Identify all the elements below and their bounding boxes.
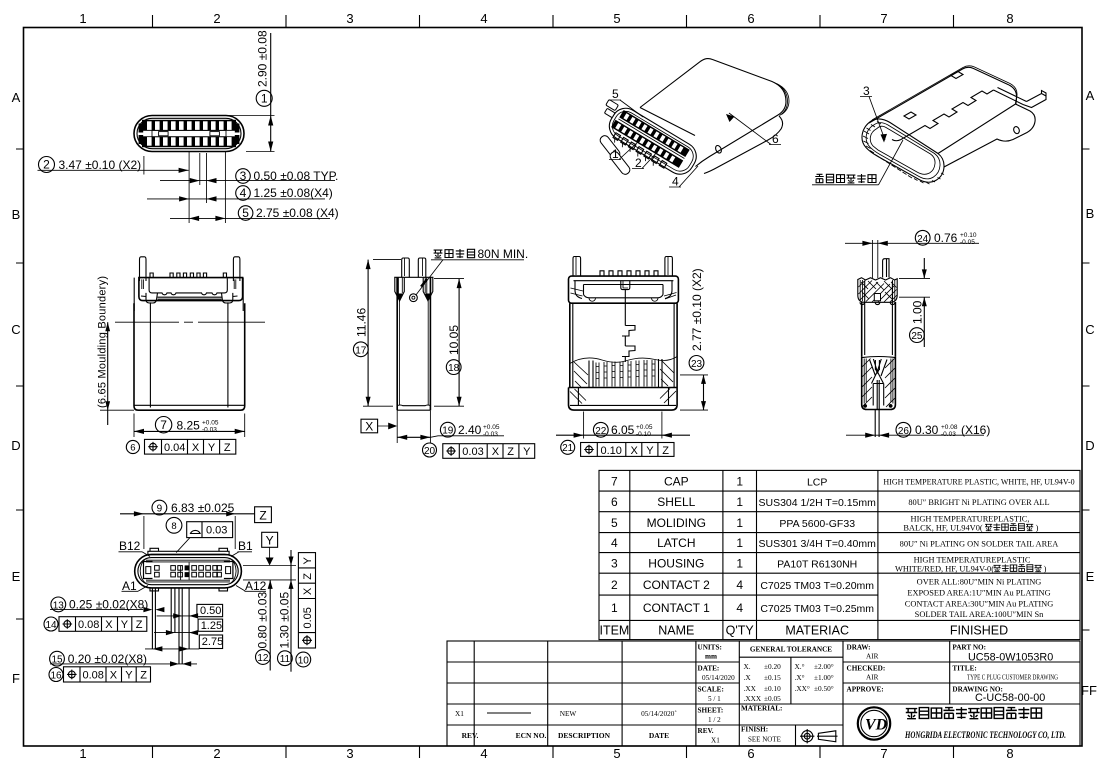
svg-text:-0.03: -0.03	[483, 431, 498, 438]
svg-text:8.25: 8.25	[177, 419, 201, 433]
svg-text:CONTACT AREA:30U″MIN Au PLATI: CONTACT AREA:30U″MIN Au PLATING	[905, 600, 1054, 609]
svg-text:±0.50°: ±0.50°	[814, 684, 834, 693]
svg-text:±0.15: ±0.15	[764, 673, 781, 682]
svg-text:1: 1	[261, 92, 268, 106]
svg-text:D: D	[11, 438, 20, 453]
svg-text:5: 5	[611, 516, 618, 530]
svg-text:6.05: 6.05	[611, 423, 635, 437]
svg-text:ECN NO.: ECN NO.	[516, 731, 547, 740]
svg-text:FINISH:: FINISH:	[741, 726, 768, 734]
svg-text:TITLE:: TITLE:	[952, 665, 976, 673]
svg-text:PA10T R6130NH: PA10T R6130NH	[777, 559, 857, 571]
svg-text:LATCH: LATCH	[657, 536, 695, 550]
svg-text:±0.10: ±0.10	[764, 684, 781, 693]
svg-text:SOLDER TAIL AREA:100U″MIN Sn: SOLDER TAIL AREA:100U″MIN Sn	[915, 610, 1044, 619]
svg-text:3: 3	[863, 84, 870, 98]
svg-text:Y: Y	[266, 533, 274, 547]
svg-text:B12: B12	[119, 539, 141, 553]
svg-text:1: 1	[612, 147, 619, 161]
svg-text:ITEM: ITEM	[599, 624, 629, 638]
svg-text:C-UC58-00-00: C-UC58-00-00	[975, 692, 1045, 704]
svg-text:5: 5	[612, 87, 619, 101]
svg-text:0.80 ±0.03: 0.80 ±0.03	[256, 592, 270, 649]
svg-text:1.30 ±0.05: 1.30 ±0.05	[278, 592, 292, 649]
svg-text:8: 8	[1006, 11, 1013, 26]
svg-text:X: X	[302, 587, 314, 595]
svg-text:DATE:: DATE:	[698, 665, 720, 673]
svg-text:AIR: AIR	[866, 653, 879, 661]
svg-text:25: 25	[911, 331, 923, 342]
svg-text:DRAW:: DRAW:	[847, 644, 871, 652]
svg-text:HIGH TEMPERATURE PLASTIC, WHIT: HIGH TEMPERATURE PLASTIC, WHITE, HF, UL9…	[883, 478, 1074, 487]
svg-text:2: 2	[635, 156, 642, 170]
svg-text:6: 6	[130, 443, 135, 454]
svg-text:Y: Y	[208, 442, 216, 454]
svg-text:X1: X1	[711, 737, 720, 745]
svg-text:C7025 TM03 T=0.25mm: C7025 TM03 T=0.25mm	[760, 603, 874, 615]
svg-text:CHECKED:: CHECKED:	[847, 665, 886, 673]
svg-text:F: F	[12, 671, 20, 686]
svg-text:B1: B1	[238, 539, 253, 553]
svg-text:.XX°: .XX°	[795, 684, 810, 693]
svg-text:UNITS:: UNITS:	[698, 644, 722, 652]
svg-text:(6.65 Moulding Boundery): (6.65 Moulding Boundery)	[97, 276, 109, 408]
svg-text:MATERIAC: MATERIAC	[785, 624, 849, 638]
svg-text:1.00: 1.00	[910, 300, 924, 324]
svg-text:DATE: DATE	[649, 731, 669, 740]
svg-text:E: E	[12, 569, 21, 584]
svg-text:12: 12	[257, 653, 269, 664]
svg-text:Y: Y	[125, 670, 133, 682]
svg-text:7: 7	[880, 11, 887, 26]
svg-text:Q'TY: Q'TY	[726, 624, 755, 638]
svg-text:7: 7	[160, 418, 167, 432]
svg-text:5: 5	[613, 746, 620, 761]
svg-text:FINISHED: FINISHED	[950, 624, 1008, 638]
svg-text:NAME: NAME	[658, 624, 694, 638]
svg-text:X: X	[631, 445, 639, 457]
svg-text:±2.00°: ±2.00°	[814, 662, 834, 671]
svg-text:10.05: 10.05	[447, 325, 461, 355]
svg-text:NEW: NEW	[560, 709, 577, 718]
svg-text:.X: .X	[744, 673, 752, 682]
svg-text:0.10: 0.10	[601, 445, 622, 457]
svg-text:4: 4	[480, 11, 487, 26]
svg-text:0.04: 0.04	[164, 442, 185, 454]
svg-text:Z: Z	[136, 619, 143, 631]
svg-text:2.90 ±0.08: 2.90 ±0.08	[256, 30, 270, 87]
svg-text:-0.03: -0.03	[941, 431, 956, 438]
svg-text:4: 4	[480, 746, 487, 761]
svg-text:±1.00°: ±1.00°	[814, 673, 834, 682]
svg-text:GENERAL TOLERANCE: GENERAL TOLERANCE	[750, 646, 832, 654]
svg-text:APPROVE:: APPROVE:	[847, 686, 884, 694]
svg-text:2: 2	[213, 746, 220, 761]
svg-text:Y: Y	[121, 619, 129, 631]
svg-text:6: 6	[747, 746, 754, 761]
svg-text:1: 1	[736, 495, 743, 509]
svg-text:HIGH TEMPERATUREPLASTIC: HIGH TEMPERATUREPLASTIC	[914, 556, 1031, 565]
svg-text:-0.05: -0.05	[960, 239, 975, 246]
svg-text:.XX: .XX	[744, 684, 757, 693]
svg-text:SEE NOTE: SEE NOTE	[748, 736, 781, 744]
svg-text:.X°: .X°	[795, 673, 805, 682]
svg-text:0.05: 0.05	[302, 607, 314, 628]
svg-text:0.03: 0.03	[206, 525, 227, 537]
svg-text:): )	[1044, 565, 1047, 574]
svg-text:10: 10	[298, 656, 310, 667]
svg-text:mm: mm	[705, 653, 717, 661]
svg-text:X1: X1	[455, 709, 464, 718]
svg-text:2: 2	[213, 11, 220, 26]
svg-text:3: 3	[346, 11, 353, 26]
svg-text:-0.03: -0.03	[202, 427, 217, 434]
svg-text:22: 22	[595, 426, 607, 437]
svg-text:-0.10: -0.10	[636, 431, 651, 438]
svg-text:OVER ALL:80U″MIN Ni PLATING: OVER ALL:80U″MIN Ni PLATING	[917, 578, 1042, 587]
svg-text:±0.05: ±0.05	[764, 694, 781, 703]
svg-text:SUS304 1/2H T=0.15mm: SUS304 1/2H T=0.15mm	[758, 497, 876, 509]
svg-text:AIR: AIR	[866, 674, 879, 682]
svg-text:4: 4	[611, 536, 618, 550]
svg-text:3: 3	[611, 557, 618, 571]
svg-text:REV.: REV.	[698, 727, 714, 735]
svg-text:6: 6	[772, 132, 779, 146]
svg-text:REV.: REV.	[462, 731, 479, 740]
svg-text:VD: VD	[865, 717, 888, 734]
svg-text:1 / 2: 1 / 2	[708, 716, 721, 724]
svg-text:4: 4	[736, 601, 743, 615]
svg-text:3: 3	[346, 746, 353, 761]
svg-text:±0.20: ±0.20	[764, 662, 781, 671]
svg-text:Y: Y	[646, 445, 654, 457]
svg-text:2: 2	[43, 158, 50, 172]
svg-text:C: C	[1085, 322, 1094, 337]
svg-text:0.08: 0.08	[78, 619, 99, 631]
svg-text:B: B	[12, 207, 21, 222]
svg-text:Z: Z	[224, 442, 231, 454]
svg-text:2.75 ±0.08 (X4): 2.75 ±0.08 (X4)	[256, 206, 339, 220]
svg-text:+0.05: +0.05	[636, 424, 653, 431]
svg-text:7: 7	[880, 746, 887, 761]
svg-text:E: E	[1086, 569, 1095, 584]
svg-text:0.50: 0.50	[200, 605, 221, 617]
svg-text:4: 4	[672, 175, 679, 189]
svg-text:1: 1	[736, 516, 743, 530]
svg-text:3: 3	[240, 169, 247, 183]
svg-text:17: 17	[355, 345, 367, 356]
svg-text:BALCK, HF, UL94V0(: BALCK, HF, UL94V0(	[903, 524, 983, 533]
svg-text:5: 5	[613, 11, 620, 26]
svg-text:2.40: 2.40	[458, 423, 482, 437]
svg-text:8: 8	[1006, 746, 1013, 761]
svg-text:UC58-0W1053R0: UC58-0W1053R0	[968, 652, 1053, 664]
svg-text:X: X	[105, 619, 113, 631]
svg-text:1: 1	[79, 11, 86, 26]
svg-text:X: X	[365, 419, 373, 433]
svg-text:PPA 5600-GF33: PPA 5600-GF33	[779, 518, 855, 530]
svg-text:.XXX: .XXX	[744, 694, 762, 703]
svg-text:Z: Z	[662, 445, 669, 457]
svg-text:11.46: 11.46	[354, 308, 368, 337]
svg-text:2: 2	[611, 578, 618, 592]
svg-text:X: X	[492, 446, 500, 458]
svg-text:): )	[1036, 524, 1039, 533]
svg-text:6: 6	[611, 495, 618, 509]
svg-text:SHEET:: SHEET:	[698, 707, 724, 715]
svg-text:4: 4	[736, 578, 743, 592]
svg-text:C: C	[11, 322, 20, 337]
svg-text:Z: Z	[507, 446, 514, 458]
svg-text:80U″ BRIGHT Ni PLATING OVER AL: 80U″ BRIGHT Ni PLATING OVER ALL	[908, 498, 1049, 507]
svg-text:1: 1	[736, 557, 743, 571]
svg-text:LCP: LCP	[807, 477, 827, 489]
svg-text:1: 1	[611, 601, 618, 615]
svg-text:14: 14	[45, 620, 57, 631]
svg-text:7: 7	[611, 475, 618, 489]
svg-text:+0.05: +0.05	[483, 424, 500, 431]
svg-text:19: 19	[442, 426, 454, 437]
svg-text:80N MIN.: 80N MIN.	[478, 247, 529, 261]
svg-text:6.83 ±0.025: 6.83 ±0.025	[171, 501, 235, 515]
svg-text:5 / 1: 5 / 1	[708, 695, 721, 703]
svg-text:Z: Z	[140, 670, 147, 682]
svg-text:+0.10: +0.10	[960, 232, 977, 239]
svg-text:Z: Z	[302, 573, 314, 580]
svg-text:2.77 ±0.10 (X2): 2.77 ±0.10 (X2)	[690, 268, 704, 351]
svg-text:1.25 ±0.08(X4): 1.25 ±0.08(X4)	[254, 186, 333, 200]
svg-text:A: A	[1086, 88, 1095, 103]
svg-text:SCALE:: SCALE:	[698, 686, 724, 694]
svg-text:21: 21	[562, 443, 574, 454]
svg-text:Y: Y	[523, 446, 531, 458]
svg-text:PART NO:: PART NO:	[952, 644, 986, 652]
svg-text:20: 20	[424, 446, 436, 457]
svg-text:X.°: X.°	[795, 662, 805, 671]
svg-text:2.75: 2.75	[202, 636, 223, 648]
svg-text:D: D	[1085, 438, 1094, 453]
svg-text:FF: FF	[1081, 683, 1097, 698]
svg-text:0.08: 0.08	[83, 670, 104, 682]
svg-text:HONGRIDA ELECTRONIC TECHNOLOGY: HONGRIDA ELECTRONIC TECHNOLOGY CO, LTD.	[904, 730, 1066, 740]
svg-text:X.: X.	[744, 662, 751, 671]
svg-text:CONTACT 2: CONTACT 2	[643, 578, 710, 592]
svg-text:23: 23	[691, 359, 703, 370]
svg-text:Y: Y	[302, 557, 314, 565]
svg-text:8: 8	[171, 521, 176, 532]
svg-text:0.03: 0.03	[462, 446, 483, 458]
svg-text:C7025 TM03 T=0.20mm: C7025 TM03 T=0.20mm	[760, 580, 874, 592]
svg-text:1.25: 1.25	[201, 620, 222, 632]
svg-text:9: 9	[157, 504, 163, 515]
svg-text:1: 1	[79, 746, 86, 761]
svg-text:4: 4	[240, 186, 247, 200]
svg-text:A: A	[12, 90, 21, 105]
svg-text:1: 1	[736, 536, 743, 550]
svg-text:18: 18	[448, 363, 460, 374]
svg-text:WHITE/RED, HF, UL94V-0(: WHITE/RED, HF, UL94V-0(	[895, 565, 994, 574]
svg-text:CONTACT 1: CONTACT 1	[643, 601, 710, 615]
svg-text:05/14/2020˚: 05/14/2020˚	[641, 709, 677, 718]
svg-text:Z: Z	[259, 508, 266, 522]
svg-text:+0.08: +0.08	[941, 424, 958, 431]
svg-text:1: 1	[736, 475, 743, 489]
svg-text:80U″ Ni PLATING ON SOLDER TAIL: 80U″ Ni PLATING ON SOLDER TAIL AREA	[900, 540, 1059, 549]
svg-text:X: X	[192, 442, 200, 454]
svg-text:SHELL: SHELL	[657, 495, 695, 509]
svg-text:CAP: CAP	[664, 475, 689, 489]
svg-text:SUS301 3/4H T=0.40mm: SUS301 3/4H T=0.40mm	[758, 538, 876, 550]
svg-text:11: 11	[280, 654, 291, 665]
svg-text:EXPOSED AREA:1U″MIN Au PLATING: EXPOSED AREA:1U″MIN Au PLATING	[907, 589, 1050, 598]
svg-text:05/14/2020: 05/14/2020	[702, 674, 735, 682]
svg-text:MOLIDING: MOLIDING	[647, 516, 706, 530]
svg-text:MATERIAL:: MATERIAL:	[741, 705, 782, 713]
svg-text:16: 16	[50, 670, 62, 681]
svg-text:TYPE C PLUG CUSTOMER DRAWING: TYPE C PLUG CUSTOMER DRAWING	[967, 675, 1058, 682]
svg-text:HOUSING: HOUSING	[648, 557, 704, 571]
svg-text:X: X	[110, 670, 118, 682]
svg-text:B: B	[1086, 206, 1095, 221]
svg-text:+0.05: +0.05	[202, 420, 219, 427]
svg-text:DESCRIPTION: DESCRIPTION	[558, 731, 611, 740]
svg-text:HIGH TEMPERATUREPLASTIC,: HIGH TEMPERATUREPLASTIC,	[911, 515, 1030, 524]
svg-text:6: 6	[747, 11, 754, 26]
